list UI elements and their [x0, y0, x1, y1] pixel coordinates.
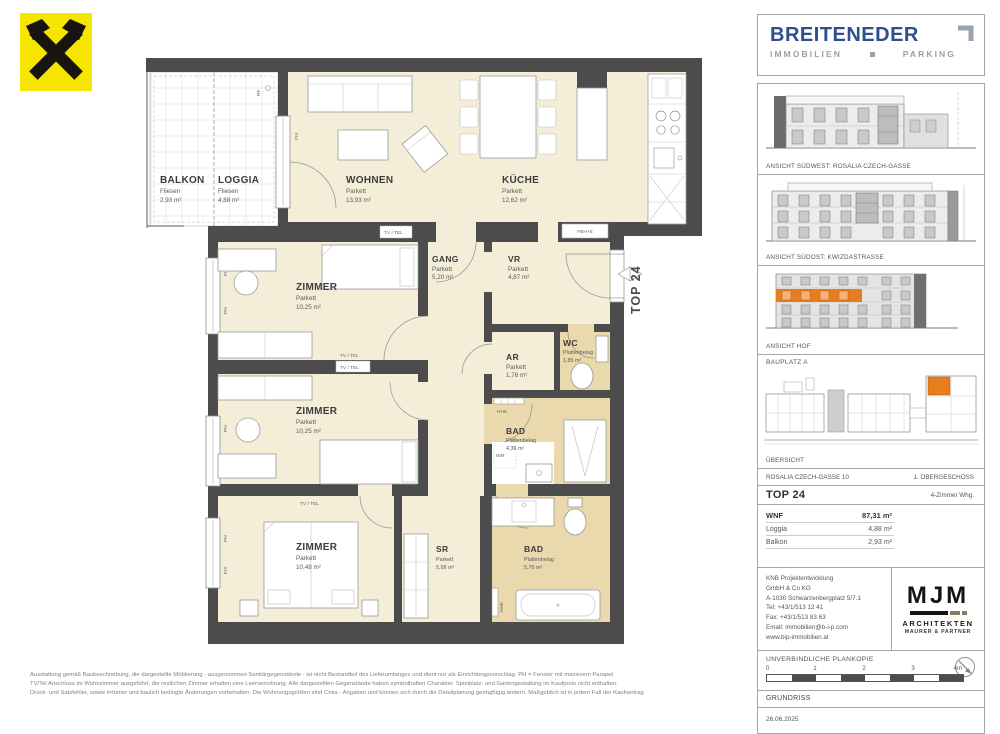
- contact-email: Email: immobilien@b-i-p.com: [766, 623, 885, 633]
- svg-text:BALKON: BALKON: [160, 175, 205, 186]
- svg-text:HHK: HHK: [497, 409, 508, 415]
- architects-line2: MAURER & PARTNER: [905, 629, 971, 635]
- architects-line1: ARCHITEKTEN: [902, 619, 973, 628]
- duct-wall-stub: [577, 72, 607, 88]
- mjm-wordmark: MJM: [907, 584, 969, 608]
- street-address: ROSALIA CZECH-GASSE 10: [766, 474, 849, 481]
- window-label: FIX: [294, 132, 300, 140]
- contact-line: GmbH & Co KG: [766, 584, 885, 594]
- elevation-hof-drawing: [758, 266, 984, 336]
- svg-text:10,25 m²: 10,25 m²: [296, 304, 321, 311]
- svg-text:WC: WC: [563, 338, 578, 348]
- contact-section: KNB Projektentwicklung GmbH & Co KG A-10…: [758, 568, 984, 651]
- window-label: PH: [223, 425, 229, 432]
- square-icon: [870, 52, 875, 57]
- svg-text:4,88 m²: 4,88 m²: [218, 197, 239, 204]
- wnf-row: WNF 87,31 m²: [766, 508, 894, 523]
- kitchen-counter: [648, 74, 686, 224]
- balkon-label: Balkon: [766, 539, 787, 546]
- contact-fax: Fax: +43/1/513 83 63: [766, 613, 885, 623]
- disclaimer-text: Ausstattung gemäß Baubeschreibung, die d…: [30, 671, 680, 698]
- brand-sub-left: IMMOBILIEN: [770, 49, 842, 59]
- scale-bar-segments: [766, 674, 964, 682]
- svg-text:ZIMMER: ZIMMER: [296, 282, 338, 293]
- svg-text:Parkett: Parkett: [296, 419, 316, 426]
- contact-line: KNB Projektentwicklung: [766, 574, 885, 584]
- caption-ansicht-hof: ANSICHT HOF: [758, 341, 984, 354]
- disclaimer-line: TV/Tel Anschluss im Wohnzimmer ausgeführ…: [30, 680, 680, 689]
- brand-name: BREITENEDER: [770, 25, 972, 45]
- plankopie-label: UNVERBINDLICHE PLANKOPIE: [766, 656, 976, 663]
- svg-text:SR: SR: [436, 544, 448, 554]
- scale-tick: 3: [911, 666, 914, 672]
- svg-text:AR: AR: [506, 352, 519, 362]
- svg-text:Parkett: Parkett: [296, 295, 316, 302]
- unit-number: TOP 24: [766, 489, 805, 501]
- raiffeisen-logo: [20, 13, 92, 91]
- drawing-type: GRUNDRISS: [766, 695, 811, 702]
- svg-text:10,25 m²: 10,25 m²: [296, 428, 321, 435]
- caption-ansicht-suedwest: ANSICHT SÜDWEST: ROSALIA CZECH-GASSE: [758, 161, 984, 174]
- svg-text:LOGGIA: LOGGIA: [218, 175, 259, 186]
- developer-contact: KNB Projektentwicklung GmbH & Co KG A-10…: [758, 568, 892, 650]
- svg-text:BAD: BAD: [506, 426, 525, 436]
- svg-text:TV / TEL: TV / TEL: [384, 230, 403, 236]
- loggia-label: Loggia: [766, 526, 787, 533]
- svg-text:Parkett: Parkett: [432, 266, 452, 273]
- contact-line: A-1030 Schwarzenbergplatz 5/7.1: [766, 594, 885, 604]
- svg-text:ZIMMER: ZIMMER: [296, 406, 338, 417]
- svg-text:GANG: GANG: [432, 254, 459, 264]
- svg-text:1,76 m²: 1,76 m²: [506, 372, 527, 379]
- uebersicht-caption: ÜBERSICHT: [758, 455, 984, 468]
- svg-text:4,87 m²: 4,87 m²: [508, 274, 529, 281]
- svg-text:BAD: BAD: [524, 544, 543, 554]
- svg-text:13,93 m²: 13,93 m²: [346, 197, 371, 204]
- svg-text:5,20 m²: 5,20 m²: [432, 274, 453, 281]
- storage-wardrobe: [404, 534, 428, 618]
- window-label: PH: [223, 307, 229, 314]
- svg-text:RF: RF: [256, 90, 262, 96]
- svg-text:Fliesen: Fliesen: [218, 188, 239, 195]
- architects-logo: MJM ARCHITEKTEN MAURER & PARTNER: [892, 568, 984, 650]
- loggia-row: Loggia 4,88 m²: [766, 523, 894, 536]
- scale-tick: 2: [862, 666, 865, 672]
- balkon-value: 2,93 m²: [868, 539, 892, 546]
- caption-ansicht-suedost: ANSICHT SÜDOST: KWIZDASTRASSE: [758, 252, 984, 265]
- plan-date: 26.06.2025: [766, 716, 799, 723]
- mjm-bar-icon: [910, 611, 967, 615]
- svg-text:Plattenbelag: Plattenbelag: [524, 557, 554, 563]
- contact-phone: Tel: +43/1/513 12 41: [766, 603, 885, 613]
- wnf-label: WNF: [766, 511, 783, 520]
- elevation-suedost-drawing: [758, 175, 984, 247]
- loggia-value: 4,88 m²: [868, 526, 892, 533]
- svg-text:10,48 m²: 10,48 m²: [296, 564, 321, 571]
- svg-text:5,98 m²: 5,98 m²: [436, 565, 454, 571]
- unit-row: TOP 24 4-Zimmer Whg.: [758, 486, 984, 505]
- wnf-value: 87,31 m²: [862, 511, 892, 520]
- window-label: PH: [223, 535, 229, 542]
- svg-text:VR: VR: [508, 254, 520, 264]
- fbh-e-niche: FBH+E: [562, 224, 608, 238]
- svg-text:TV / TEL: TV / TEL: [300, 501, 319, 507]
- section-elevation-hof: ANSICHT HOF: [758, 266, 984, 355]
- svg-text:1,85 m²: 1,85 m²: [563, 358, 581, 364]
- sidebar-panel: ANSICHT SÜDWEST: ROSALIA CZECH-GASSE ANS…: [757, 83, 985, 734]
- disclaimer-line: Ausstattung gemäß Baubeschreibung, die d…: [30, 671, 680, 680]
- dining-set: [460, 76, 556, 158]
- section-uebersicht: BAUPLATZ A ÜBERSICHT: [758, 355, 984, 469]
- disclaimer-line: Druck- und Satzfehler, sowie Irrtümer un…: [30, 689, 680, 698]
- svg-text:12,62 m²: 12,62 m²: [502, 197, 527, 204]
- section-elevation-suedwest: ANSICHT SÜDWEST: ROSALIA CZECH-GASSE: [758, 84, 984, 175]
- kitchen-island: [577, 88, 607, 160]
- unit-entrance-label: TOP 24: [629, 265, 643, 314]
- svg-text:WOHNEN: WOHNEN: [346, 175, 393, 186]
- svg-text:Plattenbelag: Plattenbelag: [563, 350, 593, 356]
- window-label: FIX: [223, 566, 229, 574]
- scale-tick: 4m: [954, 666, 962, 672]
- floor-plan: FIX PH PH FIX PH FIX FIX RF TOP 24: [140, 52, 762, 674]
- svg-text:Fliesen: Fliesen: [160, 188, 181, 195]
- scale-tick: 0: [766, 666, 769, 672]
- brand-sub-right: PARKING: [903, 49, 956, 59]
- highlighted-unit: [928, 377, 950, 395]
- building-floor: 1. OBERGESCHOSS: [913, 474, 974, 481]
- svg-text:TV / TEL: TV / TEL: [340, 365, 359, 371]
- svg-text:2,93 m²: 2,93 m²: [160, 197, 181, 204]
- svg-text:Parkett: Parkett: [508, 266, 528, 273]
- svg-text:HHK: HHK: [499, 601, 505, 612]
- sidebar: BREITENEDER IMMOBILIEN PARKING: [757, 14, 985, 734]
- svg-text:Parkett: Parkett: [346, 188, 366, 195]
- elevation-suedwest-drawing: [758, 84, 984, 156]
- svg-text:5,76 m²: 5,76 m²: [524, 565, 542, 571]
- scale-bar: 0 1 2 3 4m: [766, 666, 962, 683]
- plankopie-section: UNVERBINDLICHE PLANKOPIE 0 1 2 3 4m: [758, 651, 984, 691]
- svg-text:ZIMMER: ZIMMER: [296, 542, 338, 553]
- svg-text:Parkett: Parkett: [502, 188, 522, 195]
- svg-text:Parkett: Parkett: [506, 364, 526, 371]
- site-plan-drawing: [758, 366, 984, 450]
- svg-text:WM: WM: [496, 453, 505, 459]
- unit-type: 4-Zimmer Whg.: [931, 492, 974, 499]
- corner-bracket-icon: [957, 24, 975, 42]
- scale-tick: 1: [813, 666, 816, 672]
- section-elevation-suedost: ANSICHT SÜDOST: KWIZDASTRASSE: [758, 175, 984, 266]
- svg-text:TV / TEL: TV / TEL: [340, 353, 359, 359]
- address-row: ROSALIA CZECH-GASSE 10 1. OBERGESCHOSS: [758, 469, 984, 486]
- svg-text:Parkett: Parkett: [436, 557, 454, 563]
- svg-text:Parkett: Parkett: [296, 555, 316, 562]
- bauplatz-label: BAUPLATZ A: [758, 355, 984, 366]
- svg-text:FBH+E: FBH+E: [577, 229, 593, 235]
- date-row: 26.06.2025: [758, 708, 984, 733]
- svg-text:4,36 m²: 4,36 m²: [506, 446, 524, 452]
- contact-website: www.bip-immobilien.at: [766, 633, 885, 643]
- breiteneder-logo: BREITENEDER IMMOBILIEN PARKING: [757, 14, 985, 76]
- balkon-row: Balkon 2,93 m²: [766, 536, 894, 549]
- svg-text:KÜCHE: KÜCHE: [502, 173, 539, 186]
- svg-text:Plattenbelag: Plattenbelag: [506, 438, 536, 444]
- measurements: WNF 87,31 m² Loggia 4,88 m² Balkon 2,93 …: [758, 505, 984, 568]
